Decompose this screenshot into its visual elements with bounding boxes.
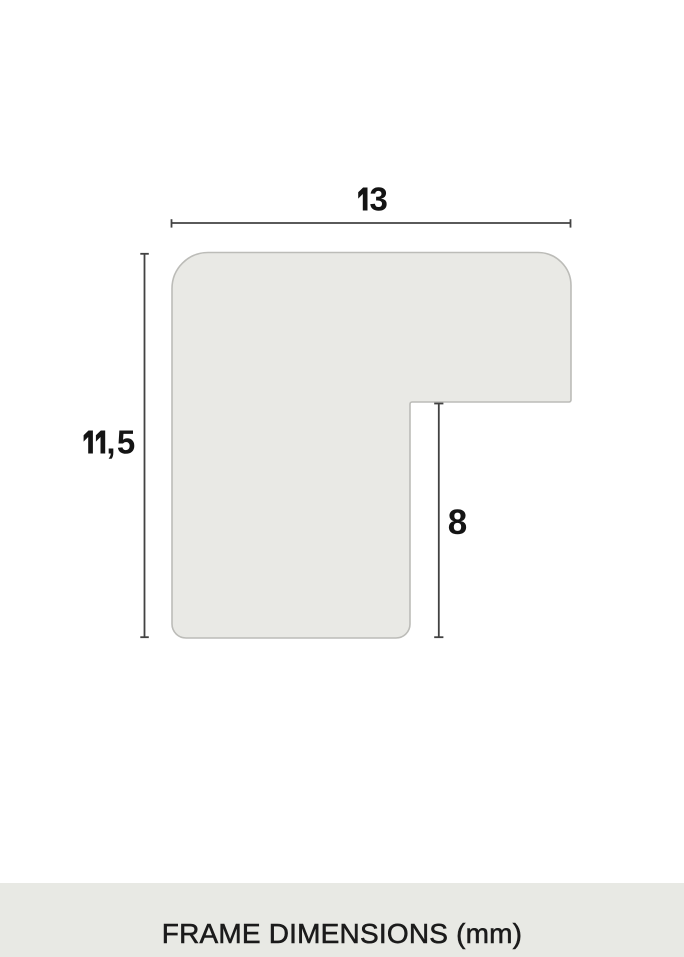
svg-text:,: , xyxy=(106,424,115,461)
svg-text:FRAME DIMENSIONS (mm): FRAME DIMENSIONS (mm) xyxy=(162,918,522,949)
svg-text:8: 8 xyxy=(448,503,467,542)
svg-text:3: 3 xyxy=(370,181,388,218)
svg-text:5: 5 xyxy=(117,424,135,461)
